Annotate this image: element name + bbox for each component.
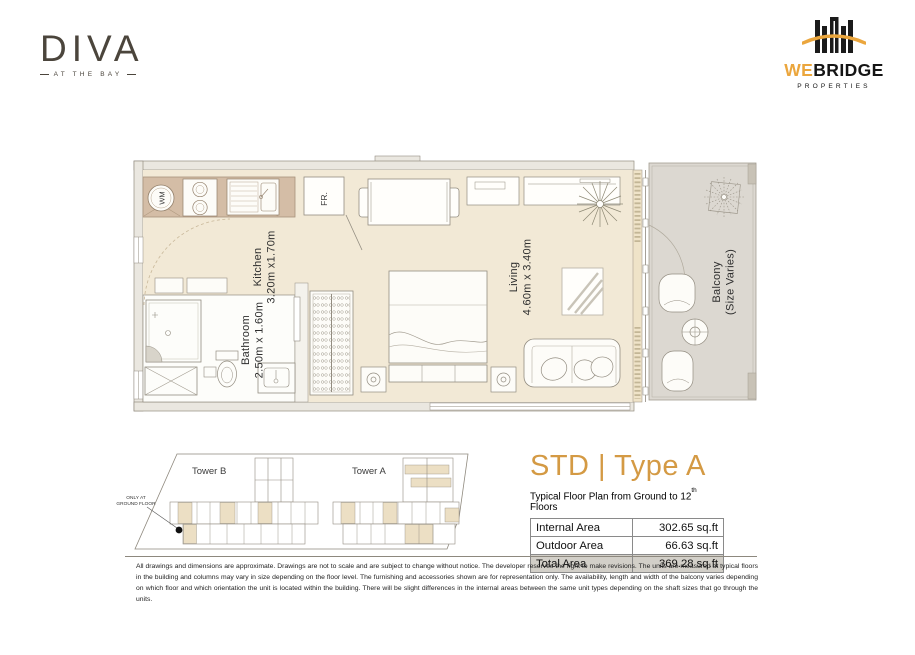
fridge: FR.: [304, 177, 344, 215]
unit-info-panel: STD | Type A Typical Floor Plan from Gro…: [530, 451, 724, 573]
webridge-bridge-icon: [802, 14, 866, 60]
bathroom-zone: [143, 278, 308, 402]
nightstand-left: [361, 367, 386, 392]
tower-a-label: Tower A: [352, 466, 386, 477]
brochure-page: DIVA AT THE BAY WEBRIDGE PROPERTIES: [0, 0, 915, 655]
dining-set: [359, 179, 459, 225]
svg-text:(Size Varies): (Size Varies): [725, 249, 737, 315]
webridge-name-we: WE: [784, 60, 813, 80]
webridge-name-bridge: BRIDGE: [813, 60, 883, 80]
tagline-dash-left: [40, 74, 49, 75]
sofa: [524, 339, 620, 387]
tower-b-label: Tower B: [192, 466, 226, 477]
svg-text:Living: Living: [508, 262, 520, 293]
unit-type-title: STD | Type A: [530, 451, 724, 483]
webridge-name: WEBRIDGE: [779, 62, 889, 80]
bottom-window: [430, 403, 630, 410]
wardrobe: [310, 291, 353, 395]
site-plan: ONLY AT GROUND FLOOR Tower B Tower A: [115, 450, 475, 555]
unit-subtitle: Typical Floor Plan from Ground to 12th F…: [530, 490, 724, 513]
svg-text:4.60m x 3.40m: 4.60m x 3.40m: [522, 239, 534, 316]
svg-text:Balcony: Balcony: [711, 261, 723, 302]
fridge-label: FR.: [319, 192, 329, 206]
table-row-internal-area: Internal Area 302.65 sq.ft: [531, 519, 724, 537]
webridge-logo: WEBRIDGE PROPERTIES: [779, 14, 889, 90]
toilet: [216, 351, 238, 387]
outdoor-area-value: 66.63 sq.ft: [632, 537, 723, 555]
bed-bench: [389, 365, 487, 382]
plant-living: [577, 181, 623, 227]
unit-location-dot: [176, 527, 183, 534]
washing-machine-label: WM: [158, 191, 167, 204]
tagline-text: AT THE BAY: [54, 71, 123, 78]
webridge-subtitle: PROPERTIES: [779, 83, 889, 90]
disclaimer-text: All drawings and dimensions are approxim…: [136, 561, 758, 605]
diva-logo-name: DIVA: [40, 30, 140, 67]
tagline-dash-right: [127, 74, 136, 75]
nightstand-right: [491, 367, 516, 392]
bed: [389, 271, 487, 382]
diva-logo: DIVA AT THE BAY: [40, 30, 140, 78]
unit-subtitle-suffix: Floors: [530, 502, 557, 513]
balcony-chair-1: [659, 274, 695, 312]
unit-subtitle-prefix: Typical Floor Plan from Ground to 12: [530, 491, 691, 502]
ground-floor-note-line2: GROUND FLOOR: [116, 501, 156, 507]
balcony-table: [682, 319, 708, 345]
shower: [146, 300, 201, 362]
shaft: [145, 367, 197, 395]
unit-subtitle-ordinal: th: [691, 487, 696, 494]
internal-area-value: 302.65 sq.ft: [632, 519, 723, 537]
svg-text:2.50m x 1.60m: 2.50m x 1.60m: [254, 302, 266, 379]
balcony-window-wall: [633, 170, 648, 402]
svg-text:Kitchen: Kitchen: [252, 248, 264, 287]
outdoor-area-label: Outdoor Area: [531, 537, 633, 555]
diva-logo-tagline: AT THE BAY: [40, 71, 136, 78]
footer-divider: [125, 556, 757, 557]
balcony-chair-2: [662, 351, 693, 391]
svg-text:Bathroom: Bathroom: [240, 315, 252, 365]
balcony-zone: [649, 163, 756, 400]
kitchen-sink: [227, 179, 279, 215]
ground-floor-note-line1: ONLY AT: [126, 495, 146, 501]
bathroom-bin: [204, 367, 216, 377]
bathroom-door-leaf: [294, 297, 300, 341]
floor-plan: FR.: [128, 155, 758, 420]
rug: [562, 268, 603, 315]
svg-text:3.20m x1.70m: 3.20m x1.70m: [266, 230, 278, 303]
stove: [183, 179, 217, 216]
internal-area-label: Internal Area: [531, 519, 633, 537]
table-row-outdoor-area: Outdoor Area 66.63 sq.ft: [531, 537, 724, 555]
